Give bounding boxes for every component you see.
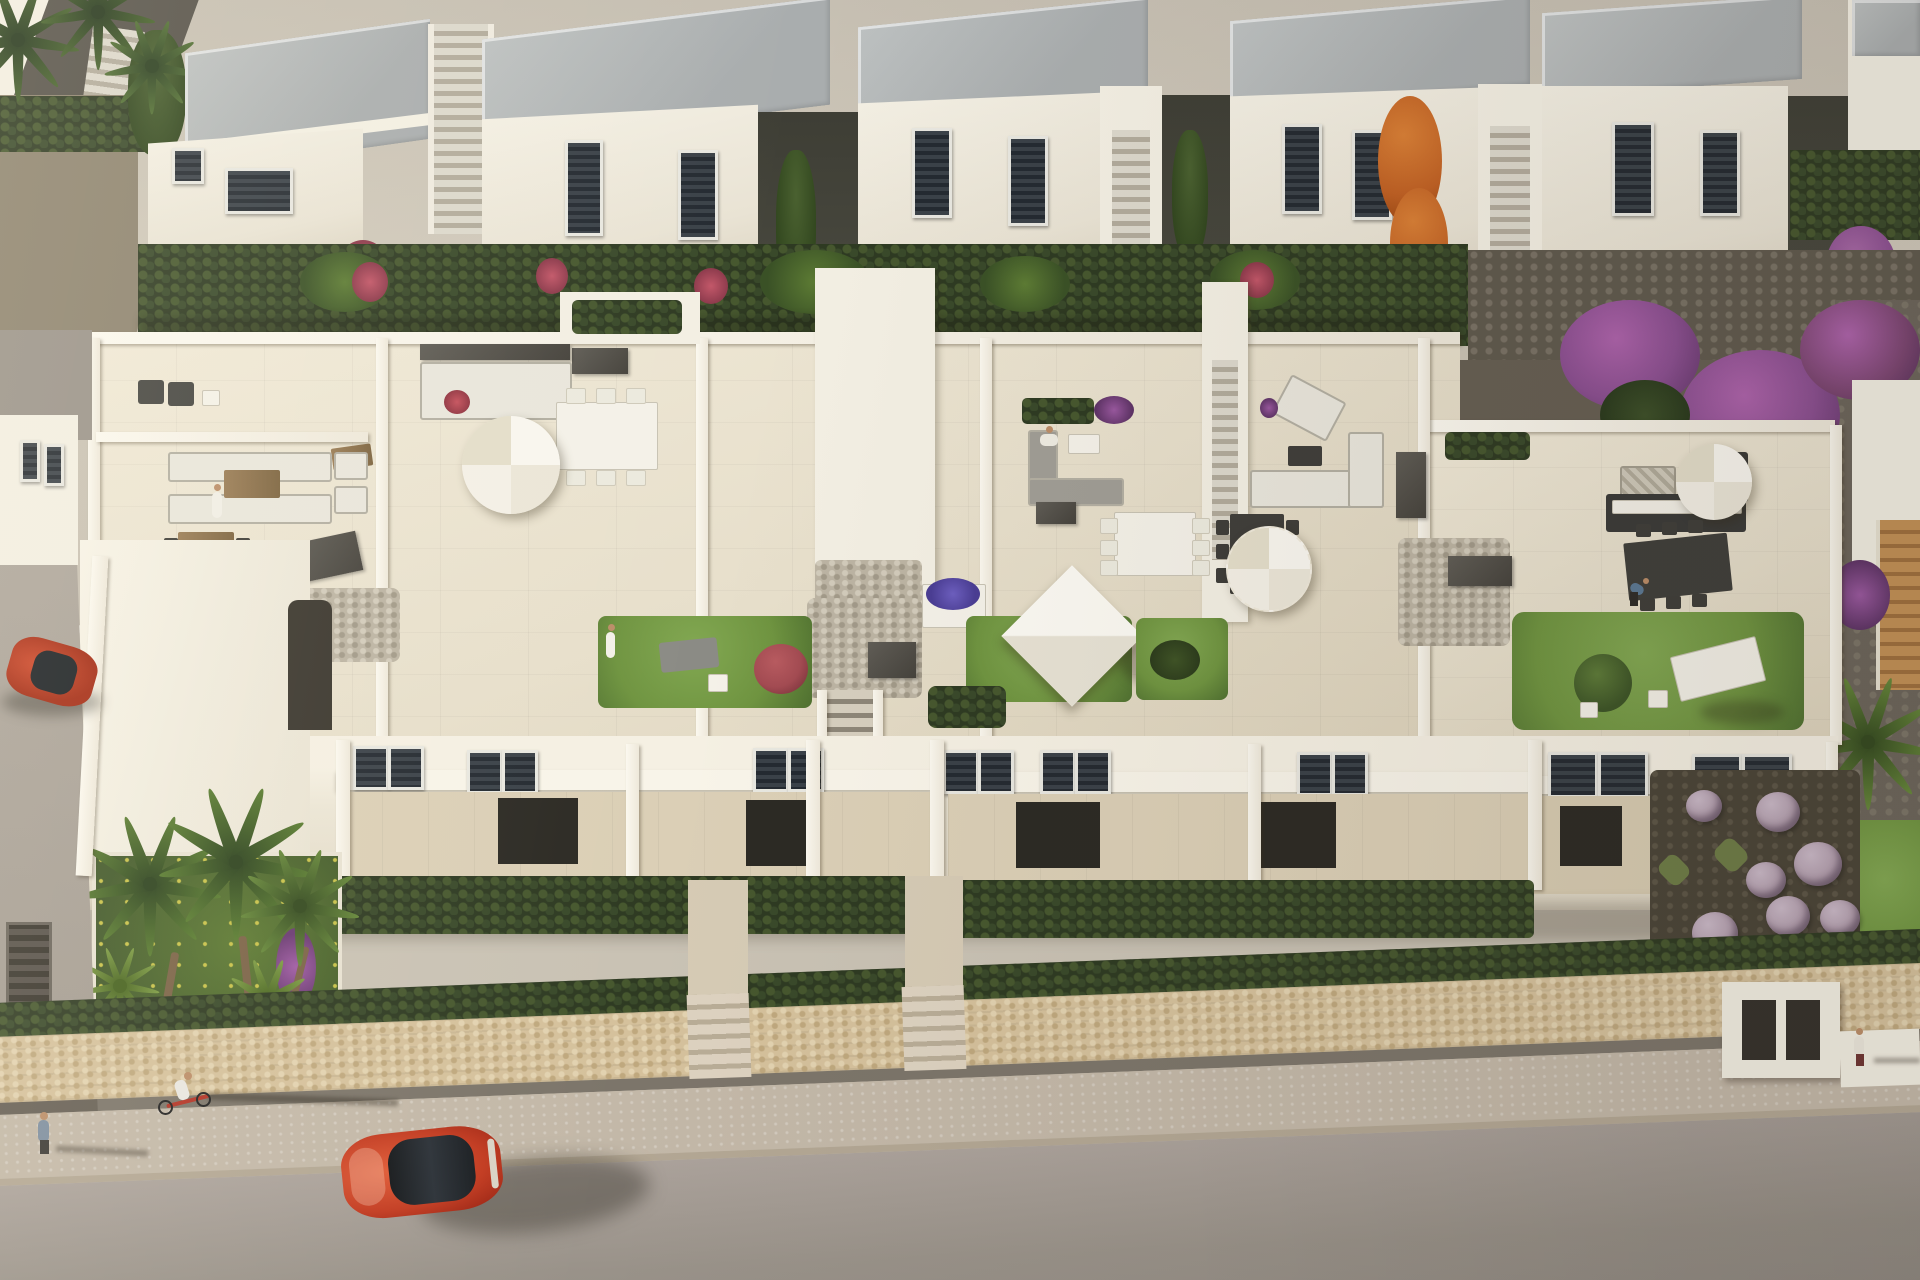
window (753, 748, 789, 792)
window (44, 444, 64, 486)
pebble-patch (1398, 538, 1510, 646)
entrance-steps (902, 985, 967, 1071)
white-parasol (1676, 444, 1752, 520)
planter-box (572, 300, 682, 334)
window (172, 148, 204, 184)
planter-box (1022, 398, 1094, 424)
window (225, 168, 293, 214)
window (467, 750, 503, 794)
gate-panel (1786, 1000, 1820, 1060)
chair (1192, 540, 1210, 556)
window (943, 750, 979, 794)
terrace-person-head (608, 624, 615, 631)
cypress-tree (1172, 130, 1208, 260)
terrace-person-head (1643, 578, 1649, 584)
window (502, 750, 538, 794)
chair (1100, 540, 1118, 556)
terrace-person-head (214, 484, 221, 491)
palm-crown (91, 5, 105, 19)
blue-flowers (926, 578, 980, 610)
bicycle-wheel (196, 1092, 211, 1107)
facade-column (930, 740, 944, 888)
chair (626, 470, 646, 486)
palm-crown (1861, 735, 1875, 749)
potted-palms (928, 686, 1006, 728)
utility-box (868, 642, 916, 678)
purple-planter (1260, 398, 1278, 418)
pedestrian-legs (1856, 1054, 1864, 1066)
car-glass-roof (27, 647, 80, 698)
window (912, 128, 952, 218)
chair (1692, 594, 1707, 607)
coffee-table (1068, 434, 1100, 454)
glass-door (498, 798, 578, 864)
entrance-path (688, 880, 748, 998)
outdoor-sofa (420, 362, 572, 420)
window (1700, 130, 1740, 216)
entrance-gate-pillar (1722, 982, 1840, 1078)
utility-box (1396, 452, 1426, 518)
chair (1192, 560, 1210, 576)
window (978, 750, 1014, 794)
armchair (334, 486, 368, 514)
lavender-ball (1756, 792, 1800, 832)
chair (626, 388, 646, 404)
window (565, 140, 603, 236)
sun-lounger (659, 637, 720, 673)
gate-panel (1742, 1000, 1776, 1060)
dining-table (1114, 512, 1196, 576)
planter (1580, 702, 1598, 718)
facade-column (1248, 744, 1261, 886)
small-building (0, 415, 78, 565)
outdoor-sofa (168, 494, 332, 524)
chair (1688, 520, 1703, 533)
lavender-ball (1686, 790, 1722, 822)
chair (1192, 518, 1210, 534)
palm-crown (143, 877, 157, 891)
chair (596, 470, 616, 486)
coffee-table (224, 470, 280, 498)
terrace-person-legs (1630, 592, 1638, 606)
facade-column (1528, 740, 1542, 890)
banana-plant (980, 256, 1070, 312)
window (1548, 752, 1598, 798)
pedestrian-head (40, 1112, 48, 1120)
white-parasol (462, 416, 560, 514)
parapet-divider (96, 432, 368, 442)
bicycle-wheel (158, 1100, 173, 1115)
chair (1662, 522, 1677, 535)
front-hedge (330, 876, 930, 934)
planter-box (1445, 432, 1530, 460)
left-gable-wall (80, 540, 310, 870)
lounger-shadow (1700, 700, 1784, 724)
red-flower-pot (444, 390, 470, 414)
utility-box (572, 348, 628, 374)
dining-table (556, 402, 658, 470)
car-glass-roof (386, 1133, 478, 1208)
pedestrian-head (1856, 1028, 1863, 1035)
palm-crown (113, 979, 127, 993)
lavender-ball (1766, 896, 1810, 936)
window (1297, 752, 1333, 796)
chair (1636, 524, 1651, 537)
chair (566, 388, 586, 404)
person-shadow (1874, 1058, 1920, 1063)
armchair (138, 380, 164, 404)
terrace-person-sitting (1040, 434, 1058, 446)
porch-recess (288, 600, 332, 730)
balcony-beam (948, 772, 1534, 792)
car-rear-trim (487, 1138, 499, 1188)
coffee-table (1288, 446, 1322, 466)
armchair (168, 382, 194, 406)
roof (1852, 0, 1920, 56)
pedestrian-legs (40, 1140, 49, 1154)
roof (1542, 0, 1802, 97)
pedestrian (1854, 1036, 1864, 1056)
facade-column (626, 744, 639, 886)
parapet-divider (1830, 425, 1842, 745)
entrance-path (905, 876, 963, 992)
chair (1100, 560, 1118, 576)
corner-sofa (1348, 432, 1384, 508)
car-hood-shine (347, 1146, 387, 1207)
side-table (202, 390, 220, 406)
window (678, 150, 718, 240)
pink-shrub (352, 262, 388, 302)
pedestrian (38, 1120, 49, 1142)
side-chair (1648, 690, 1668, 708)
chair (566, 470, 586, 486)
back-parapet (88, 332, 1460, 344)
palm-crown (229, 855, 243, 869)
window (1075, 750, 1111, 794)
window (1040, 750, 1076, 794)
window (20, 440, 40, 482)
parapet-divider (376, 338, 388, 746)
lavender-ball (1794, 842, 1842, 886)
stair-core (815, 268, 935, 598)
pink-shrub (536, 258, 568, 294)
terrace-person-standing (606, 632, 615, 658)
terrace-person-standing (212, 492, 222, 518)
utility-box (1448, 556, 1512, 586)
white-parasol (1226, 526, 1312, 612)
entrance-steps (687, 993, 752, 1079)
purple-planter (1094, 396, 1134, 424)
utility-box (1036, 502, 1076, 524)
red-shrub (754, 644, 808, 694)
glass-door (1258, 802, 1336, 868)
chair (1216, 520, 1229, 535)
back-parapet (1425, 420, 1835, 432)
chair (1666, 596, 1681, 609)
armchair (334, 452, 368, 480)
window (1598, 752, 1648, 798)
glass-door (1560, 806, 1622, 866)
front-hedge (948, 880, 1534, 938)
window (1282, 124, 1322, 214)
window (1612, 122, 1654, 216)
cyclist-head (184, 1072, 192, 1080)
media-bench (420, 344, 570, 360)
palm-crown (293, 899, 307, 913)
window (388, 746, 424, 790)
lavender-ball (1746, 862, 1786, 898)
chair (1100, 518, 1118, 534)
side-table (708, 674, 728, 692)
glass-door (1016, 802, 1100, 868)
terrace-person-head (1046, 426, 1053, 433)
window (1008, 136, 1048, 226)
window (353, 746, 389, 790)
shrub (1150, 640, 1200, 680)
aerial-render-scene (0, 0, 1920, 1280)
palm-crown (145, 59, 159, 73)
facade-column (806, 740, 820, 888)
window (1332, 752, 1368, 796)
chair (1640, 598, 1655, 611)
chair (596, 388, 616, 404)
palm-crown (11, 33, 25, 47)
